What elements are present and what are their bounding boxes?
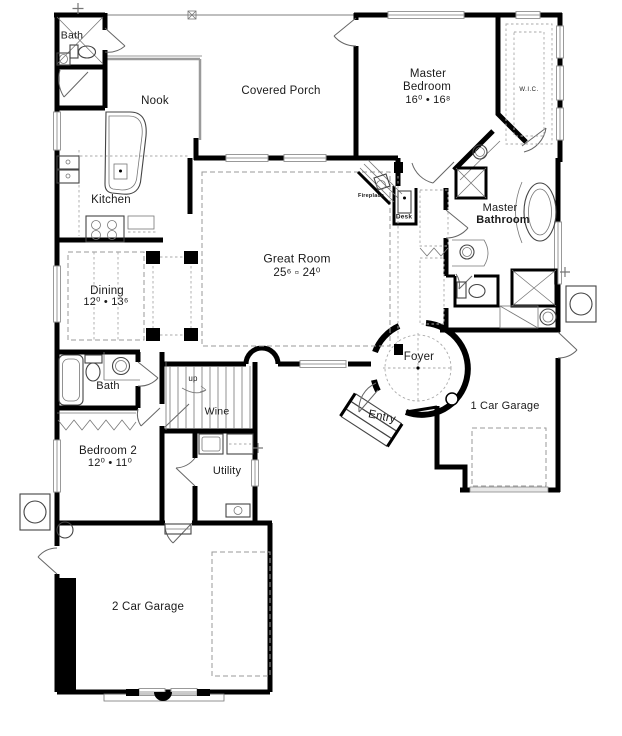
survey-mark-icon	[73, 3, 84, 14]
floor-plan-drawing	[0, 0, 622, 736]
room-dims-master-bedroom: 16⁰ • 16⁸	[405, 95, 450, 107]
stairs-icon	[166, 362, 250, 430]
garage-wall-fill	[58, 578, 76, 690]
garage-doors	[104, 487, 548, 701]
bedroom2-closet	[57, 413, 136, 430]
kitchen-fixtures	[57, 112, 188, 242]
room-dims-bedroom2: 12⁰ • 11⁰	[88, 458, 132, 470]
main-bath-fixtures	[59, 352, 140, 405]
toilet-room-walls	[455, 276, 498, 306]
room-dims-great-room: 25⁶ ▫ 24⁰	[273, 267, 320, 279]
sink-icon	[113, 358, 130, 375]
utility-fixtures	[165, 434, 253, 534]
room-dims-dining: 12⁰ • 13⁶	[83, 297, 128, 309]
garage-bay-arc	[154, 692, 172, 701]
desk-icon	[398, 191, 411, 213]
room-label-nook: Nook	[141, 95, 169, 107]
room-label-great-room: Great Room	[263, 253, 330, 266]
room-label-dining: Dining	[90, 285, 124, 297]
room-label-wic: W.I.C.	[519, 87, 538, 93]
label-fireplace: Fireplace	[358, 194, 384, 200]
room-label-2-car-garage: 2 Car Garage	[112, 601, 184, 613]
closet-rod-icon	[58, 420, 136, 430]
label-stairs-up: up	[188, 375, 197, 383]
room-label-bath-upper: Bath	[61, 30, 83, 41]
toilet-icon	[85, 355, 102, 363]
room-label-master-bathroom-2: Bathroom	[476, 215, 530, 227]
room-label-master-bedroom-2: Bedroom	[403, 81, 451, 93]
room-label-master-bedroom: Master	[410, 68, 446, 80]
room-label-bath-main: Bath	[96, 381, 119, 393]
toilet-icon	[457, 282, 466, 298]
master-suite-fixtures	[358, 24, 556, 328]
room-label-wine: Wine	[205, 406, 230, 417]
room-label-utility: Utility	[213, 466, 241, 478]
sink-icon	[57, 156, 79, 169]
arched-niche	[246, 348, 278, 364]
room-label-bedroom2: Bedroom 2	[79, 445, 137, 457]
floor-plan: Bath Nook Covered Porch Master Bedroom 1…	[0, 0, 622, 736]
room-label-covered-porch: Covered Porch	[241, 85, 320, 97]
label-desk: Desk	[396, 215, 412, 222]
walls	[54, 13, 562, 692]
room-label-master-bathroom: Master	[483, 203, 518, 215]
sink-icon	[540, 309, 556, 325]
porch-screen-walls	[103, 11, 354, 140]
room-label-foyer: Foyer	[404, 351, 434, 363]
garage-door-1car	[470, 487, 548, 492]
foyer-turret-icon	[374, 323, 468, 415]
room-label-1-car-garage: 1 Car Garage	[470, 401, 539, 413]
room-label-kitchen: Kitchen	[91, 194, 131, 206]
